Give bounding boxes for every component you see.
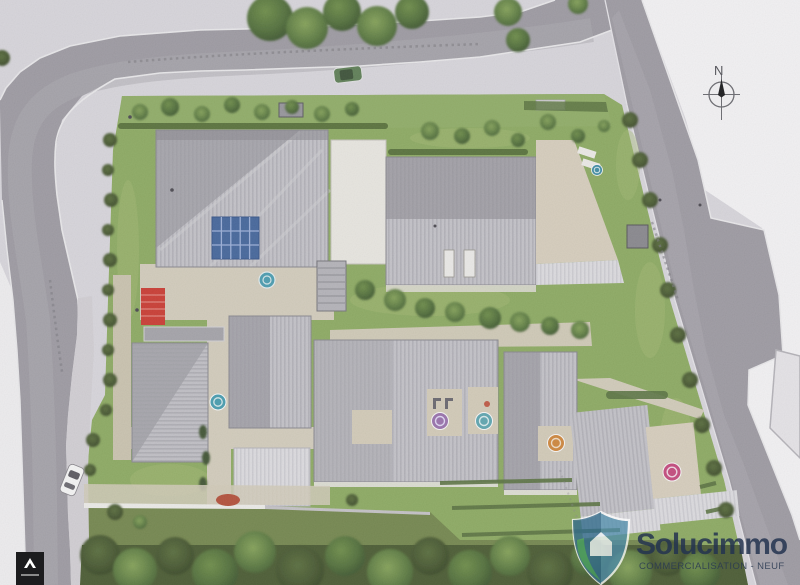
svg-text:COMMERCIALISATION - NEUF: COMMERCIALISATION - NEUF — [639, 561, 785, 572]
svg-text:Solucimmo: Solucimmo — [636, 528, 788, 561]
